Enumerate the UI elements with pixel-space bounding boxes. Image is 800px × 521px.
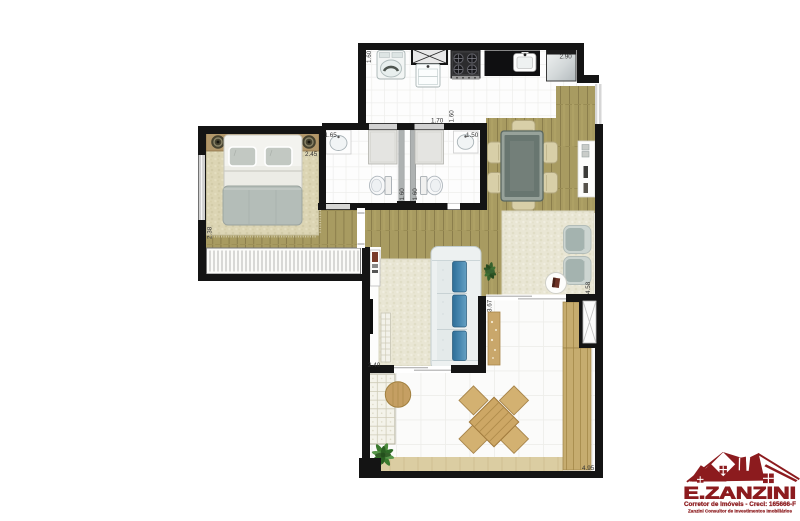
svg-text:2.40: 2.40: [368, 362, 381, 369]
svg-text:2.45: 2.45: [305, 151, 318, 158]
svg-text:Zanzini Consultor de Investime: Zanzini Consultor de Investimentos Imobi…: [688, 509, 792, 514]
svg-text:1.60: 1.60: [412, 188, 419, 201]
svg-text:3.67: 3.67: [487, 299, 494, 312]
svg-text:E.ZANZINI: E.ZANZINI: [684, 484, 797, 503]
svg-text:1.60: 1.60: [449, 110, 456, 123]
svg-text:2.38: 2.38: [207, 226, 214, 239]
svg-text:2.90: 2.90: [560, 54, 573, 61]
svg-text:4.58: 4.58: [585, 281, 592, 294]
svg-text:4.95: 4.95: [582, 465, 595, 472]
svg-text:1.60: 1.60: [399, 188, 406, 201]
svg-text:1.60: 1.60: [366, 50, 373, 63]
svg-text:1.50: 1.50: [466, 132, 479, 139]
svg-text:1.70: 1.70: [431, 118, 444, 125]
svg-text:1.65: 1.65: [325, 132, 338, 139]
svg-text:Corretor de Imóveis - Creci: 1: Corretor de Imóveis - Creci: 165666-F: [684, 501, 796, 508]
